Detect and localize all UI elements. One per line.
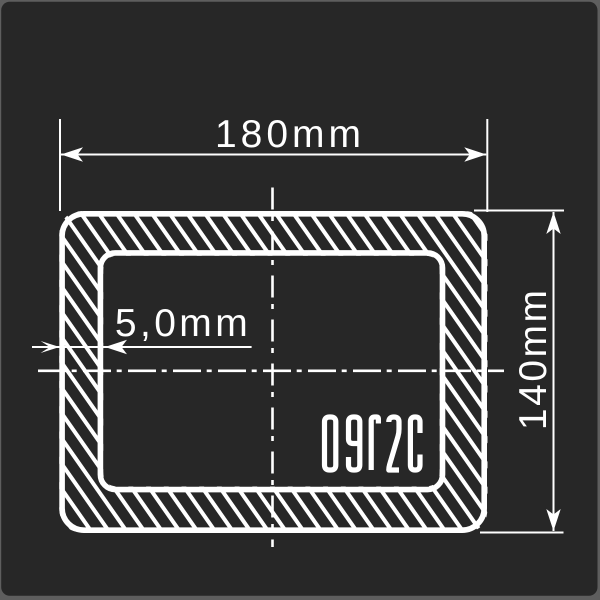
svg-text:180mm: 180mm xyxy=(215,113,365,156)
svg-text:5,0mm: 5,0mm xyxy=(115,302,251,345)
svg-text:140mm: 140mm xyxy=(512,288,555,431)
